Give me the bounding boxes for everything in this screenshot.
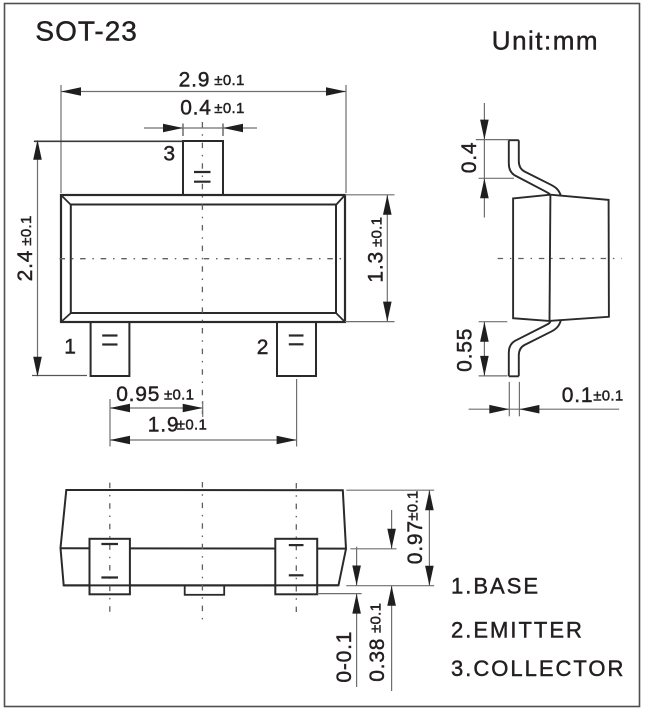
svg-text:±0.1: ±0.1 bbox=[18, 215, 35, 245]
svg-text:1.BASE: 1.BASE bbox=[451, 574, 540, 599]
svg-text:0.55: 0.55 bbox=[454, 328, 477, 372]
svg-text:0.38: 0.38 bbox=[366, 638, 389, 682]
svg-text:±0.1: ±0.1 bbox=[214, 100, 244, 117]
svg-text:±0.1: ±0.1 bbox=[369, 217, 386, 247]
svg-text:1.3: 1.3 bbox=[364, 251, 387, 283]
svg-text:SOT-23: SOT-23 bbox=[35, 16, 137, 47]
svg-text:±0.1: ±0.1 bbox=[164, 387, 194, 404]
svg-text:0.95: 0.95 bbox=[116, 383, 160, 406]
svg-text:2.4: 2.4 bbox=[14, 250, 37, 282]
svg-text:0.1: 0.1 bbox=[562, 384, 594, 407]
svg-text:±0.1: ±0.1 bbox=[214, 72, 244, 89]
svg-text:±0.1: ±0.1 bbox=[593, 388, 623, 405]
svg-text:Unit:mm: Unit:mm bbox=[492, 25, 599, 55]
svg-text:1: 1 bbox=[64, 335, 76, 358]
svg-text:0.4: 0.4 bbox=[180, 96, 212, 119]
svg-text:2.EMITTER: 2.EMITTER bbox=[451, 617, 584, 642]
svg-text:1.9: 1.9 bbox=[148, 413, 180, 436]
svg-text:0.4: 0.4 bbox=[458, 142, 481, 174]
svg-text:3: 3 bbox=[163, 143, 175, 166]
svg-text:3.COLLECTOR: 3.COLLECTOR bbox=[451, 656, 625, 681]
svg-text:2.9: 2.9 bbox=[179, 68, 211, 91]
svg-text:±0.1: ±0.1 bbox=[368, 603, 385, 633]
svg-text:2: 2 bbox=[257, 336, 269, 359]
svg-text:0.97: 0.97 bbox=[404, 520, 427, 564]
svg-text:±0.1: ±0.1 bbox=[405, 491, 422, 521]
svg-text:0-0.1: 0-0.1 bbox=[333, 631, 356, 683]
svg-text:±0.1: ±0.1 bbox=[177, 417, 207, 434]
